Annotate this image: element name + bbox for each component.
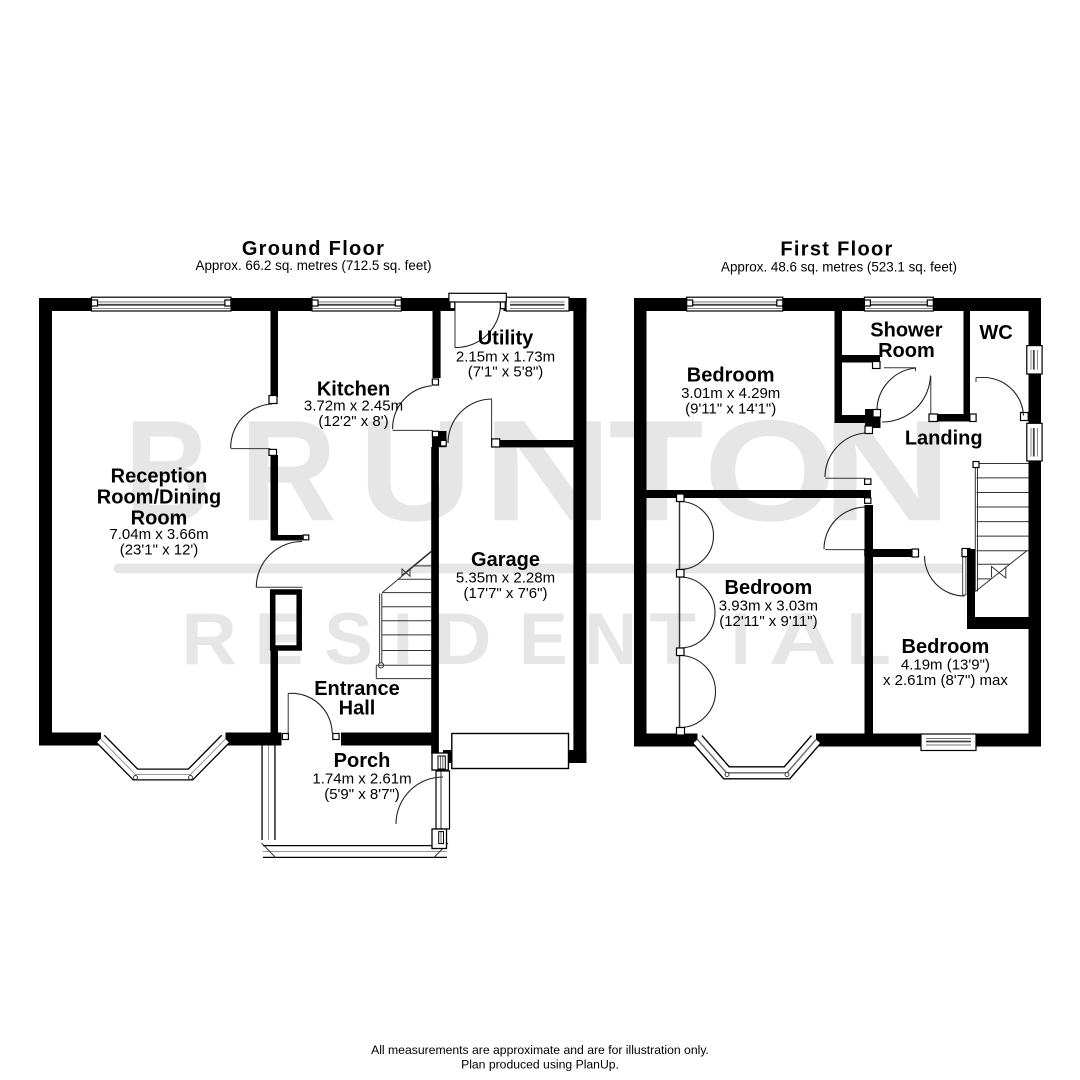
svg-text:(7'1" x 5'8"): (7'1" x 5'8") bbox=[468, 364, 544, 381]
svg-text:x 2.61m (8'7") max: x 2.61m (8'7") max bbox=[883, 672, 1008, 689]
svg-text:7.04m x 3.66m: 7.04m x 3.66m bbox=[109, 526, 208, 543]
svg-text:E: E bbox=[519, 599, 568, 680]
svg-text:Room: Room bbox=[878, 340, 935, 362]
svg-text:N: N bbox=[482, 390, 613, 551]
svg-text:3.93m x 3.03m: 3.93m x 3.03m bbox=[719, 598, 818, 615]
svg-text:3.01m x 4.29m: 3.01m x 4.29m bbox=[681, 385, 780, 402]
svg-text:Approx. 66.2 sq. metres (712.5: Approx. 66.2 sq. metres (712.5 sq. feet) bbox=[196, 258, 432, 273]
svg-text:Reception: Reception bbox=[111, 466, 208, 488]
svg-text:Shower: Shower bbox=[870, 320, 942, 342]
svg-text:Landing: Landing bbox=[905, 428, 983, 450]
svg-text:4.19m (13'9"): 4.19m (13'9") bbox=[901, 657, 990, 674]
svg-text:Plan produced using PlanUp.: Plan produced using PlanUp. bbox=[461, 1058, 619, 1072]
svg-text:(12'11" x 9'11"): (12'11" x 9'11") bbox=[719, 613, 817, 630]
svg-text:Hall: Hall bbox=[339, 698, 376, 720]
svg-text:WC: WC bbox=[979, 322, 1012, 344]
svg-text:D: D bbox=[433, 599, 492, 680]
svg-text:Approx. 48.6 sq. metres (523.1: Approx. 48.6 sq. metres (523.1 sq. feet) bbox=[721, 260, 957, 275]
svg-text:Bedroom: Bedroom bbox=[725, 577, 813, 599]
svg-text:(5'9" x 8'7"): (5'9" x 8'7") bbox=[324, 786, 400, 803]
svg-text:R: R bbox=[181, 599, 237, 680]
svg-text:First Floor: First Floor bbox=[780, 239, 893, 261]
svg-text:I: I bbox=[393, 599, 413, 680]
svg-text:(9'11" x 14'1"): (9'11" x 14'1") bbox=[685, 400, 776, 417]
svg-text:Utility: Utility bbox=[478, 328, 534, 350]
svg-text:Bedroom: Bedroom bbox=[902, 636, 990, 658]
svg-text:Garage: Garage bbox=[471, 549, 540, 571]
svg-text:Ground Floor: Ground Floor bbox=[242, 238, 385, 260]
svg-text:Room/Dining: Room/Dining bbox=[97, 487, 221, 509]
svg-text:All measurements are approxima: All measurements are approximate and are… bbox=[371, 1043, 709, 1057]
svg-text:1.74m x 2.61m: 1.74m x 2.61m bbox=[312, 771, 411, 788]
svg-text:Porch: Porch bbox=[334, 750, 391, 772]
svg-text:N: N bbox=[584, 599, 637, 680]
svg-text:S: S bbox=[324, 599, 373, 680]
svg-text:5.35m x 2.28m: 5.35m x 2.28m bbox=[456, 570, 555, 587]
svg-text:(12'2" x 8'): (12'2" x 8') bbox=[318, 413, 388, 430]
svg-text:T: T bbox=[649, 599, 696, 680]
svg-text:(17'7" x 7'6"): (17'7" x 7'6") bbox=[464, 585, 548, 602]
svg-text:Bedroom: Bedroom bbox=[687, 364, 775, 386]
svg-text:E: E bbox=[255, 599, 304, 680]
svg-text:(23'1" x 12'): (23'1" x 12') bbox=[120, 542, 199, 559]
